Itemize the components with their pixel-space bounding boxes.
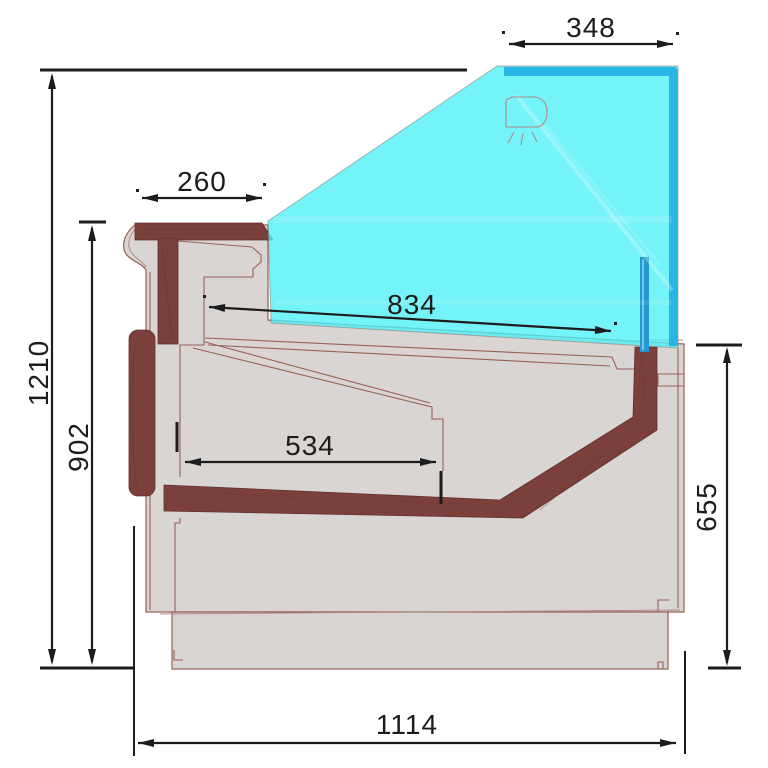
curved-glass-assembly: [268, 66, 678, 352]
dim-label-1114: 1114: [376, 709, 438, 740]
front-upright-panel: [158, 238, 178, 344]
front-bumper: [129, 330, 155, 496]
dim-label-260: 260: [177, 166, 227, 197]
dimension-260: 260: [136, 166, 266, 202]
dim-label-902: 902: [63, 422, 94, 472]
dimension-902: 902: [63, 222, 106, 665]
dimension-655: 655: [691, 345, 742, 668]
dim-label-348: 348: [566, 12, 616, 43]
cross-section-drawing: 348 260 834 534 1210: [0, 0, 768, 768]
glass-pane: [268, 66, 678, 348]
body-pedestal: [172, 612, 668, 669]
dim-label-655: 655: [691, 482, 722, 532]
dim-label-1210: 1210: [23, 340, 54, 406]
dim-label-534: 534: [285, 430, 335, 461]
glass-top-edge: [504, 67, 676, 76]
counter-top-rail: [135, 223, 273, 240]
dim-label-834: 834: [387, 289, 437, 320]
dimension-348: 348: [502, 12, 679, 48]
technical-drawing-canvas: 348 260 834 534 1210: [0, 0, 768, 768]
